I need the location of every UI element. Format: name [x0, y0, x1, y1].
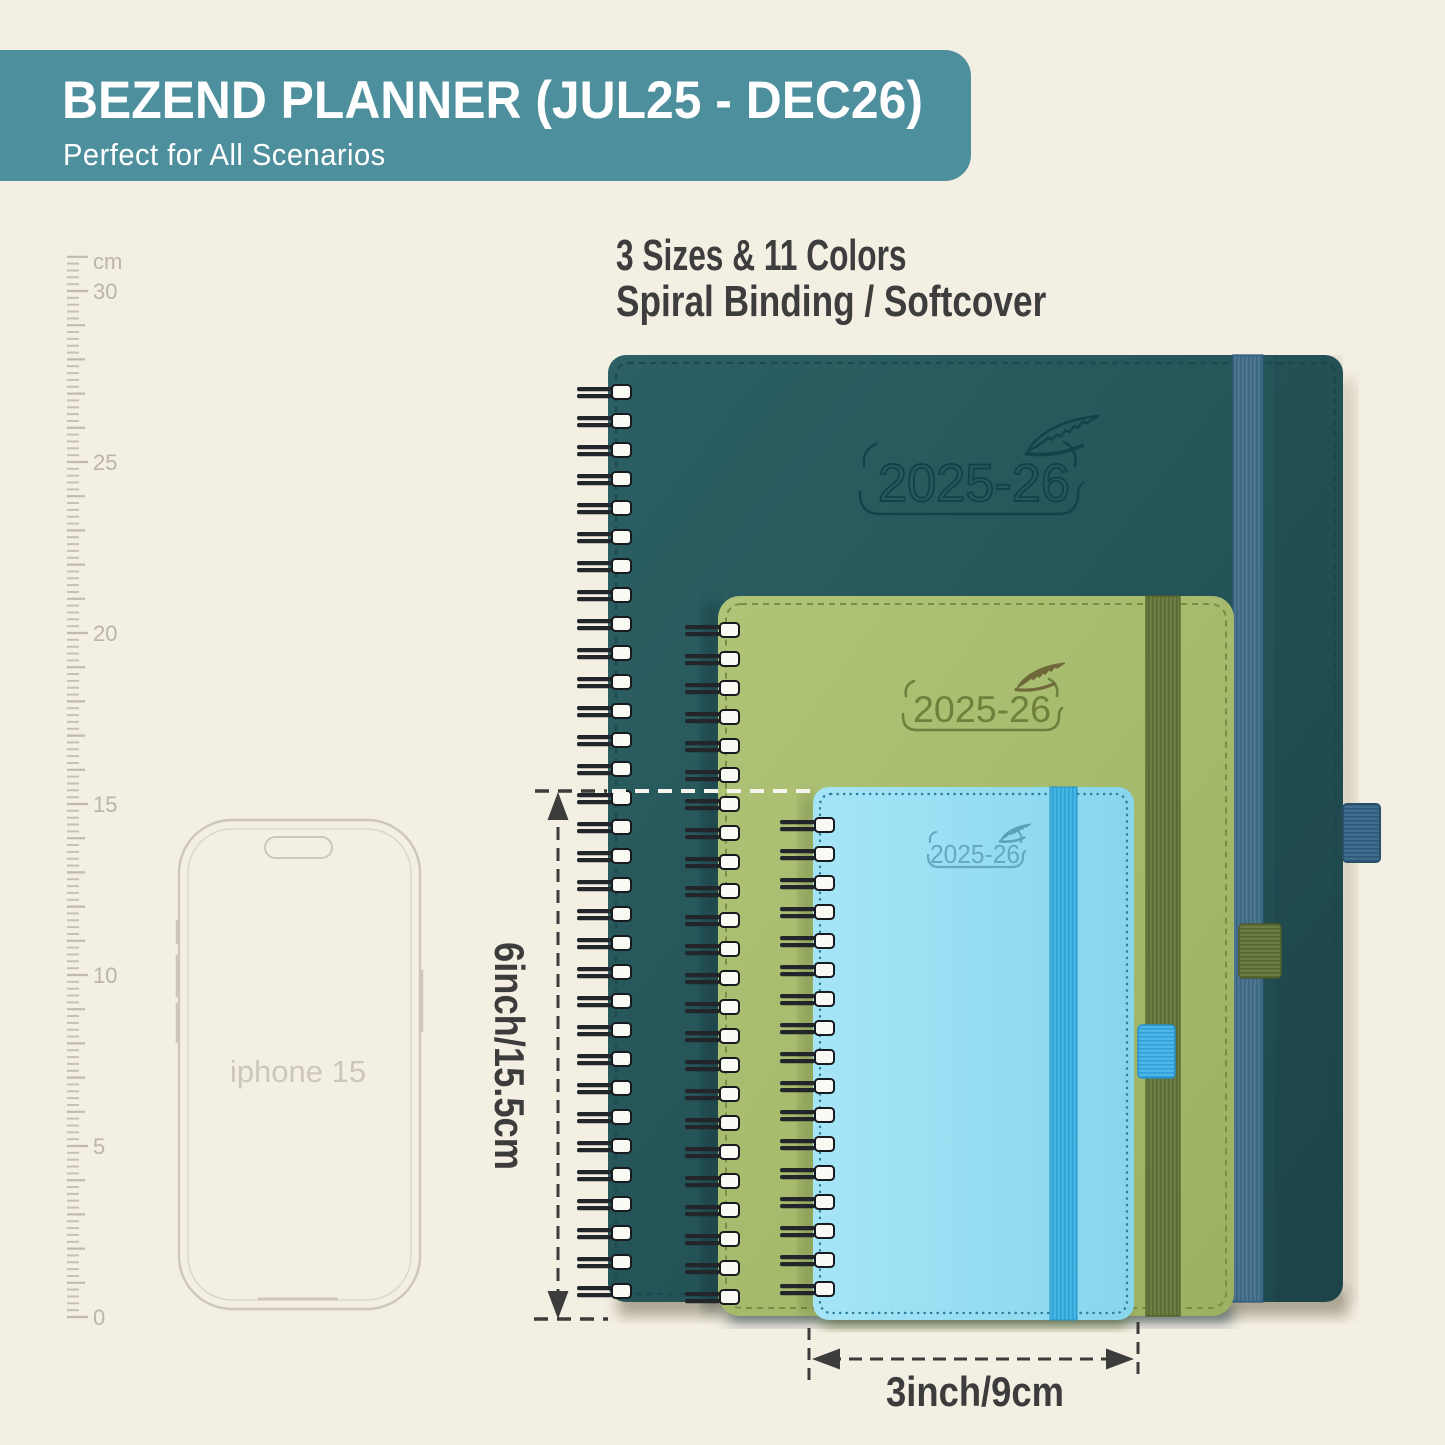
- svg-text:5: 5: [93, 1134, 105, 1159]
- svg-text:iphone 15: iphone 15: [230, 1054, 366, 1089]
- svg-text:15: 15: [93, 792, 117, 817]
- svg-text:6inch/15.5cm: 6inch/15.5cm: [486, 942, 533, 1170]
- svg-text:10: 10: [93, 963, 117, 988]
- svg-text:0: 0: [93, 1305, 105, 1330]
- svg-text:20: 20: [93, 621, 117, 646]
- svg-text:2025-26: 2025-26: [930, 839, 1020, 869]
- svg-text:2025-26: 2025-26: [878, 454, 1070, 513]
- svg-text:25: 25: [93, 450, 117, 475]
- svg-text:30: 30: [93, 279, 117, 304]
- svg-text:3inch/9cm: 3inch/9cm: [886, 1368, 1064, 1415]
- svg-text:2025-26: 2025-26: [913, 689, 1051, 730]
- svg-text:cm: cm: [93, 249, 122, 274]
